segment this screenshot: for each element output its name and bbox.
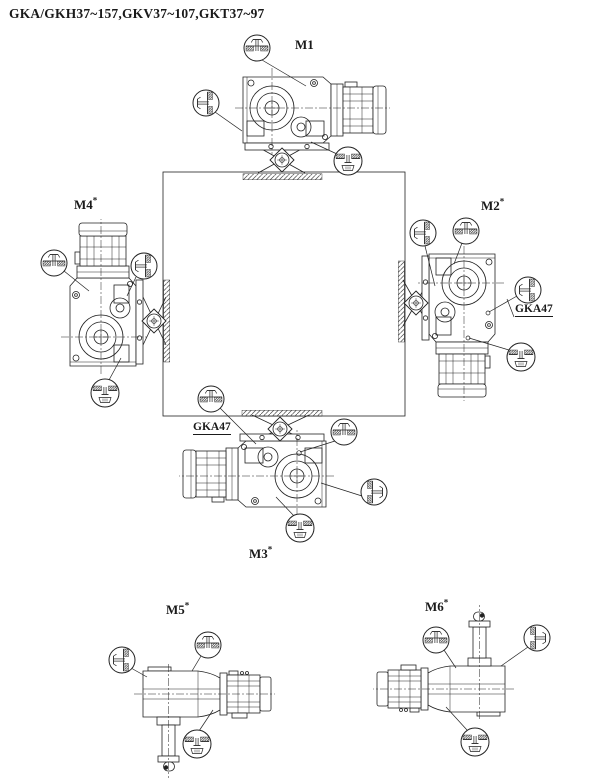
mounting-surface-top [243, 174, 322, 180]
gear-unit-m3-drawing [179, 430, 334, 516]
diagram-canvas [0, 0, 600, 783]
oil-level-plug-icon [131, 253, 157, 279]
breather-plug-icon [331, 419, 357, 445]
mounting-positions-diagram: GKA/GKH37~157,GKV37~107,GKT37~97 M1 M2* … [0, 0, 600, 783]
mounting-frame [163, 172, 405, 416]
oil-level-plug-icon [361, 479, 387, 505]
mounting-flange-icon [270, 148, 294, 172]
position-label-m4: M4* [74, 197, 97, 213]
oil-level-plug-icon [524, 625, 550, 651]
position-label-m5: M5* [166, 602, 189, 618]
breather-plug-icon [198, 386, 224, 412]
position-label-m2: M2* [481, 198, 504, 214]
breather-plug-icon [41, 250, 67, 276]
oil-drain-plug-icon [91, 379, 119, 407]
breather-plug-icon [423, 627, 449, 653]
mounting-flange-icon [142, 309, 166, 333]
page-title: GKA/GKH37~157,GKV37~107,GKT37~97 [9, 6, 264, 22]
oil-drain-plug-icon [334, 147, 362, 175]
oil-level-plug-icon [410, 220, 436, 246]
gear-unit-m4-drawing [61, 219, 147, 374]
oil-level-plug-icon [193, 90, 219, 116]
breather-plug-icon [195, 632, 221, 658]
breather-plug-icon [453, 218, 479, 244]
gear-unit-m6-drawing [373, 605, 514, 719]
oil-drain-plug-icon [461, 728, 489, 756]
annotation-gka47-m3: GKA47 [193, 421, 231, 435]
oil-level-plug-icon [109, 647, 135, 673]
annotation-gka47-m2: GKA47 [515, 303, 553, 317]
position-label-m1: M1 [295, 37, 314, 53]
oil-drain-plug-icon [286, 514, 314, 542]
oil-drain-plug-icon [507, 343, 535, 371]
gear-unit-m1-drawing [235, 68, 390, 154]
position-label-m3: M3* [249, 546, 272, 562]
position-label-m6: M6* [425, 599, 448, 615]
oil-drain-plug-icon [183, 730, 211, 758]
flange-cross-lines [143, 147, 429, 442]
mounting-surface-bottom [242, 410, 322, 416]
oil-level-plug-icon [515, 277, 541, 303]
gear-unit-m5-drawing [134, 664, 275, 778]
breather-plug-icon [244, 35, 270, 61]
mounting-surface-right [398, 261, 404, 342]
